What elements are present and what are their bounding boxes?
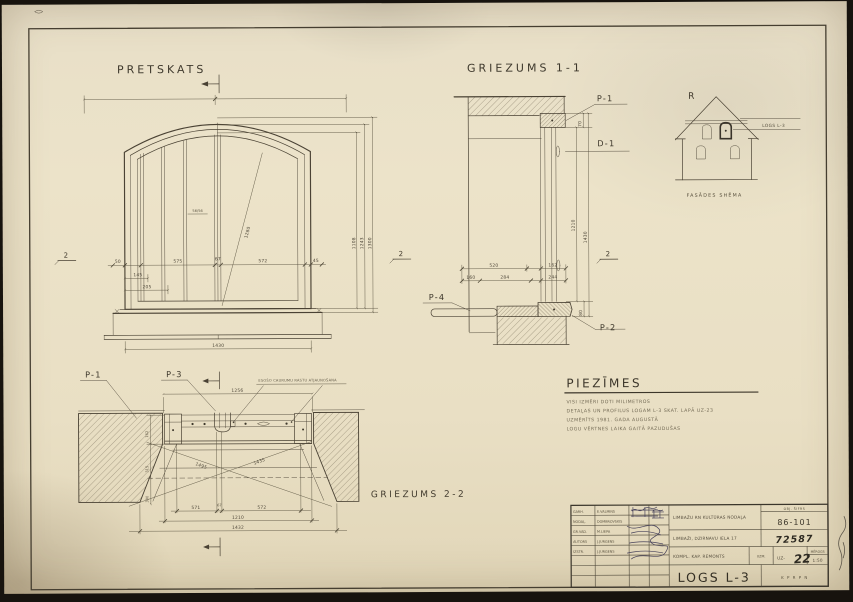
- name-3: M.LIEPA: [597, 530, 611, 534]
- notes-block: PIEZĪMES VISI IZMĒRI DOTI MILIMETROS DET…: [564, 376, 758, 433]
- height-dim-2: 1243: [359, 237, 365, 249]
- w-dim-575: 575: [173, 259, 182, 265]
- sill-piece-p2: [538, 302, 572, 316]
- notes-title: PIEZĪMES: [566, 376, 642, 390]
- lower-window-right: [730, 146, 739, 159]
- w-dim-145: 145: [133, 272, 142, 278]
- w-dim-67: 67: [215, 256, 221, 262]
- svg-text:80: 80: [578, 310, 584, 316]
- facade-window-label: LOGS L-3: [762, 123, 785, 129]
- svg-text:572: 572: [257, 505, 266, 511]
- org-code: K P R P N: [781, 575, 808, 580]
- svg-text:70: 70: [577, 121, 583, 127]
- name-5: J.JURGENS: [596, 550, 614, 554]
- svg-text:244: 244: [548, 274, 557, 280]
- note-line-2: DETAĻAS UN PROFILUS LOGAM L-3 SKAT. LAPĀ…: [566, 407, 713, 415]
- w-dim-45: 45: [313, 258, 319, 264]
- wall-right: [314, 412, 359, 501]
- sill: [104, 308, 331, 339]
- drawing-title: LOGS L-3: [678, 570, 751, 585]
- svg-text:162: 162: [145, 431, 149, 438]
- label-p1-plan: P-1: [85, 369, 102, 379]
- cut-mark-bottom: [203, 538, 220, 556]
- sheet-number: 22: [794, 551, 811, 566]
- sill-board: [431, 309, 497, 317]
- section-cut-mark-top: [201, 75, 219, 93]
- center-piece-p3: [215, 413, 231, 432]
- diag-dim-2: 1435: [253, 457, 266, 467]
- role-1: GARH.: [573, 510, 584, 514]
- section-marker-right: 2: [390, 250, 411, 263]
- drawing-svg: PRETSKATS 1280 56/56: [0, 0, 853, 602]
- role-3: GR.VAD.: [573, 530, 587, 534]
- title-block: GARH. E.VALMINS NODAĻ. DOMBROVSKIS GR.VA…: [571, 504, 828, 587]
- svg-text:162: 162: [548, 262, 557, 268]
- wall-hatch-bottom: [497, 317, 566, 343]
- w-dim-total: 1430: [212, 343, 224, 349]
- sheet-prefix: UZ-: [777, 555, 785, 560]
- facade-schema: R LOGS L-3 FASĀDES SHĒMA: [675, 91, 800, 199]
- archive-number: 72587: [775, 534, 813, 546]
- frame-band: [165, 412, 312, 444]
- name-2: DOMBROVSKIS: [597, 520, 622, 524]
- front-view: PRETSKATS 1280 56/56: [54, 62, 411, 354]
- w-dim-50: 50: [115, 259, 121, 265]
- svg-text:1430: 1430: [583, 231, 589, 243]
- address: LIMBAŽI, DZIRNAVU IELA 17: [673, 536, 737, 541]
- svg-text:1210: 1210: [571, 219, 577, 231]
- scale-label: MĒROGS: [811, 549, 825, 554]
- w-dim-572: 572: [258, 258, 267, 264]
- svg-text:1210: 1210: [232, 515, 244, 521]
- label-p3: P-3: [166, 369, 183, 379]
- svg-text:571: 571: [191, 505, 200, 511]
- lintel-hatch: [468, 96, 564, 115]
- jamb-left: [165, 414, 182, 444]
- facade-r-label: R: [688, 92, 694, 102]
- cut-mark-top: [202, 372, 219, 389]
- dim-1256: 1256: [231, 388, 243, 394]
- client: LIMBAŽU RN KULTŪRAS NODAĻA: [673, 515, 746, 520]
- restoration-note: ESOŠO CAURUMU RASTU ATJAUNOŠANA: [258, 377, 337, 382]
- w-dim-205: 205: [142, 284, 151, 290]
- section-2-2: P-1 P-3 ESOŠO CAURUMU RASTU ATJAUNOŠANA …: [78, 368, 466, 557]
- label-p4: P-4: [429, 292, 446, 302]
- code-header: OBJ. ŠIFRS: [784, 506, 806, 511]
- front-view-title: PRETSKATS: [117, 63, 206, 76]
- mullions: [140, 123, 221, 301]
- svg-text:380: 380: [145, 495, 149, 503]
- object-code: 86-101: [777, 518, 811, 527]
- corner-mark: [35, 10, 43, 13]
- svg-text:315: 315: [145, 466, 149, 473]
- margin-handwriting: [839, 516, 846, 570]
- radius-dim: 1280: [243, 226, 252, 239]
- svg-text:67: 67: [217, 503, 222, 507]
- role-2: NODAĻ.: [573, 520, 586, 524]
- lower-window-left: [696, 146, 705, 159]
- scale-value: 1:50: [813, 558, 823, 563]
- work: KOMPL. KAP. REMONTS: [673, 554, 725, 559]
- note-line-4: LOGU VĒRTNES LAIKA GAITĀ PAZUDUŠAS: [567, 425, 681, 432]
- drawing-sheet: PRETSKATS 1280 56/56: [2, 1, 850, 594]
- height-dim-3: 1300: [367, 237, 373, 249]
- section1-dims: 70 1210 1430 80 520 162 160 284 244: [459, 113, 593, 317]
- note-line-1: VISI IZMĒRI DOTI MILIMETROS: [566, 398, 650, 405]
- section2-title: GRIEZUMS 2-2: [371, 490, 466, 500]
- section-marker-left: 2: [55, 252, 76, 265]
- front-width-dims: 50 575 67 572 45 145 205: [108, 256, 326, 294]
- section1-title: GRIEZUMS 1-1: [467, 61, 583, 75]
- label-d1: D-1: [597, 138, 615, 148]
- role-5: IZSTR.: [573, 550, 584, 554]
- svg-text:2: 2: [64, 252, 69, 260]
- section1-marker: 2: [597, 250, 618, 263]
- svg-text:2: 2: [606, 250, 611, 258]
- front-top-dim: [84, 94, 346, 113]
- svg-text:284: 284: [500, 275, 509, 281]
- hinge-top: [556, 146, 559, 157]
- name-4: J.JURGENS: [596, 540, 614, 544]
- jamb-right: [295, 413, 312, 443]
- note-line-3: UZMĒRĪTS 1981. GADA AUGUSTĀ: [567, 416, 659, 423]
- svg-text:520: 520: [489, 263, 498, 269]
- svg-text:2: 2: [399, 250, 404, 258]
- label-p2: P-2: [600, 322, 617, 332]
- section-1-1: GRIEZUMS 1-1 P-1 D-1 P-4 P-2: [422, 61, 630, 345]
- svg-text:160: 160: [466, 275, 475, 281]
- attic-window-left: [702, 125, 711, 139]
- glass-dim: 56/56: [192, 209, 203, 213]
- height-dim-1: 1108: [351, 237, 357, 249]
- uzm-label: UZM.: [757, 555, 766, 559]
- role-4: AUTORS: [573, 540, 587, 544]
- wall-left: [79, 413, 163, 502]
- name-1: E.VALMINS: [597, 510, 615, 514]
- svg-text:1432: 1432: [232, 525, 244, 531]
- facade-caption: FASĀDES SHĒMA: [687, 192, 743, 199]
- label-p1: P-1: [597, 93, 614, 103]
- front-bottom-dim: 1430: [125, 340, 311, 353]
